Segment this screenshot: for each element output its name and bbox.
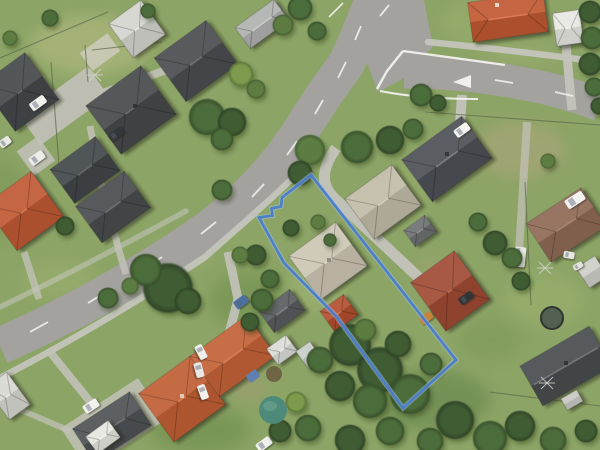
- tree-canopy: [282, 219, 300, 237]
- tree-canopy: [310, 214, 326, 230]
- tree-canopy: [121, 277, 139, 295]
- tree-canopy: [352, 383, 388, 419]
- tree-canopy: [402, 118, 424, 140]
- tree-canopy: [468, 212, 488, 232]
- tree-canopy: [41, 9, 59, 27]
- pool-dome-highlight: [263, 401, 277, 411]
- chimney: [495, 3, 499, 7]
- tree-canopy: [210, 127, 234, 151]
- tree-canopy: [375, 125, 405, 155]
- tree-canopy: [540, 153, 556, 169]
- chimney: [327, 258, 331, 262]
- tree-canopy: [574, 419, 598, 443]
- tree-canopy: [501, 247, 523, 269]
- tree-canopy: [504, 410, 536, 442]
- tree-canopy: [2, 30, 18, 46]
- grass-patch: [475, 122, 565, 178]
- tree-canopy: [307, 21, 327, 41]
- tree-canopy: [294, 414, 322, 442]
- tree-canopy: [384, 330, 412, 358]
- tree-canopy: [375, 416, 405, 446]
- tree-canopy: [353, 318, 377, 342]
- chimney: [564, 361, 568, 365]
- tree-canopy: [97, 287, 119, 309]
- tree-canopy: [250, 288, 274, 312]
- tree-canopy: [306, 346, 334, 374]
- chimney: [445, 152, 449, 156]
- tree-canopy: [174, 287, 202, 315]
- tree-canopy: [55, 216, 75, 236]
- tree-canopy: [246, 79, 266, 99]
- tree-canopy: [323, 233, 337, 247]
- tree-canopy: [240, 312, 260, 332]
- tree-canopy: [285, 391, 307, 413]
- aerial-imagery-canvas[interactable]: [0, 0, 600, 450]
- tree-canopy: [260, 269, 280, 289]
- tree-canopy: [211, 179, 233, 201]
- aerial-map-view[interactable]: [0, 0, 600, 450]
- tree-canopy: [272, 14, 294, 36]
- tree-canopy: [324, 370, 356, 402]
- tree-canopy: [511, 271, 531, 291]
- trampoline: [541, 307, 563, 329]
- tree-canopy: [231, 246, 249, 264]
- chimney: [133, 104, 137, 108]
- tree-canopy: [140, 3, 156, 19]
- tree-canopy: [340, 130, 374, 164]
- driveway: [566, 45, 572, 110]
- garden-planter: [266, 366, 282, 382]
- tree-canopy: [429, 94, 447, 112]
- chimney: [180, 394, 184, 398]
- grass-patch: [460, 320, 520, 360]
